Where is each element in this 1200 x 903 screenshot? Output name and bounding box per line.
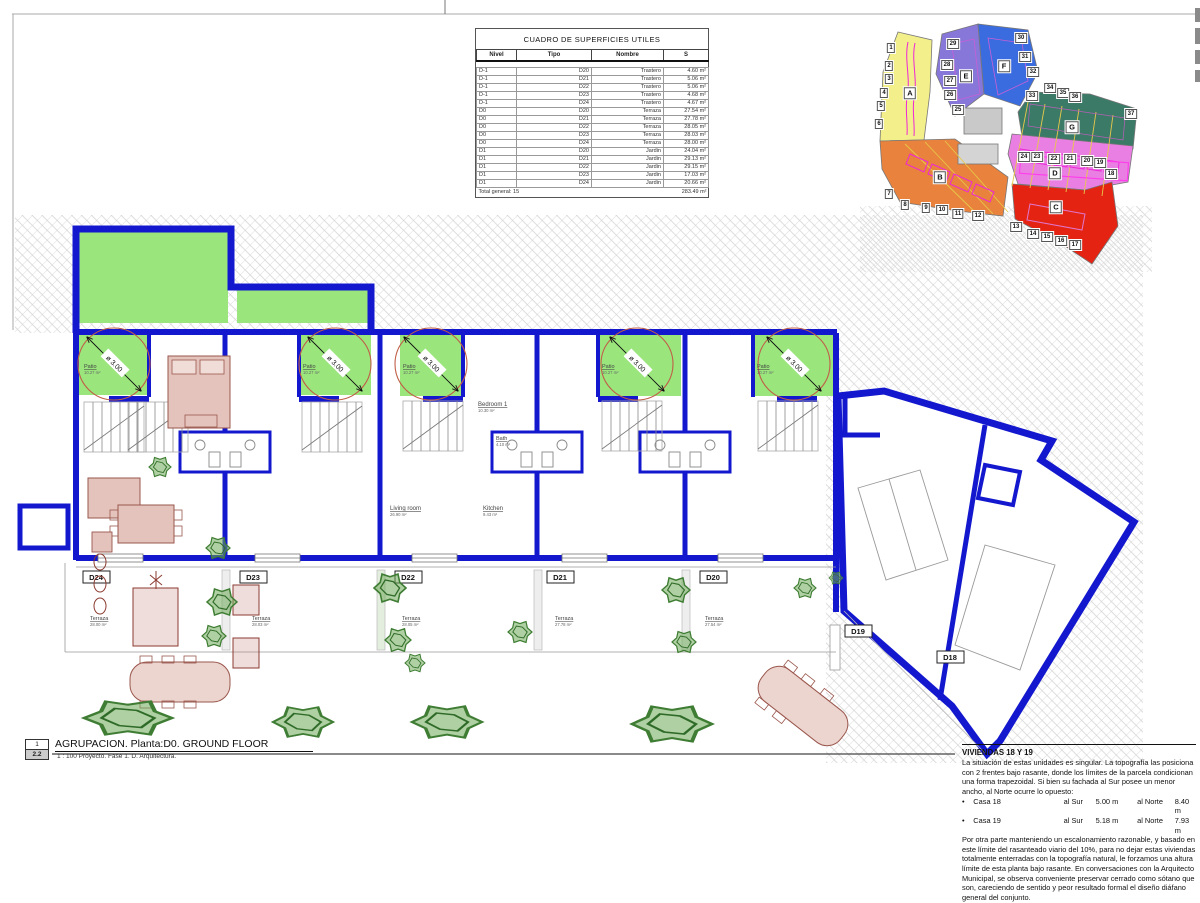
bath-area: 4.10 m² [496, 442, 511, 447]
table-cell: Jardin [592, 172, 664, 180]
table-cell: D23 [517, 132, 592, 140]
table-cell: D24 [517, 100, 592, 108]
table-cell: Jardin [592, 164, 664, 172]
table-cell: D22 [517, 124, 592, 132]
sur-value: 5.00 m [1096, 797, 1137, 816]
patio-area: 10.27 m² [303, 370, 320, 375]
zone-label-f: F [998, 60, 1010, 72]
table-cell: 28.00 m² [664, 140, 709, 148]
table-cell: Terraza [592, 116, 664, 124]
notes-block: VIVIENDAS 18 Y 19 La situación de estas … [962, 744, 1196, 903]
index-top: 1 [26, 740, 48, 750]
table-cell: D-1 [477, 92, 517, 100]
plot-number-36: 36 [1069, 92, 1081, 102]
notes-paragraph-2: Por otra parte manteniendo un escalonami… [962, 835, 1196, 902]
table-cell: D1 [477, 148, 517, 156]
table-cell: D23 [517, 92, 592, 100]
table-row: D-1D20Trastero4.60 m² [477, 68, 709, 76]
unit-tag-d21: D21 [553, 573, 567, 582]
plot-number-31: 31 [1019, 52, 1031, 62]
terraza-labels: Terraza28.00 m² Terraza28.03 m² Terraza2… [90, 616, 724, 627]
plot-number-8: 8 [901, 200, 909, 210]
plot-number-7: 7 [885, 189, 893, 199]
sur-label: al Sur [1064, 797, 1096, 816]
site-key-map: 1234567891011121314151617181920212223242… [860, 14, 1152, 272]
plot-number-28: 28 [941, 60, 953, 70]
table-cell: 29.15 m² [664, 164, 709, 172]
plot-number-29: 29 [947, 39, 959, 49]
plot-number-6: 6 [875, 119, 883, 129]
table-cell: D0 [477, 116, 517, 124]
table-cell: D-1 [477, 84, 517, 92]
table-cell: D-1 [477, 76, 517, 84]
casa-19-row: • Casa 19 al Sur 5.18 m al Norte 7.93 m [962, 816, 1196, 835]
col-header-tipo: Tipo [517, 50, 592, 62]
table-row: D1D20Jardin24.04 m² [477, 148, 709, 156]
table-cell: Trastero [592, 76, 664, 84]
total-value: 283.49 m² [664, 188, 709, 198]
zone-label-c: C [1050, 201, 1062, 213]
table-cell: D23 [517, 172, 592, 180]
notes-title: VIVIENDAS 18 Y 19 [962, 748, 1196, 758]
bedroom-area: 10.30 m² [478, 408, 495, 413]
drawing-sheet: ø 3.00 ø 3.00 ø 3.00 ø 3.00 ø 3.00 [0, 0, 1200, 903]
table-cell: D0 [477, 108, 517, 116]
surface-table-title: CUADRO DE SUPERFICIES UTILES [476, 29, 708, 49]
table-row: D0D24Terraza28.00 m² [477, 140, 709, 148]
table-row: D1D21Jardin29.13 m² [477, 156, 709, 164]
site-key-map-canvas [860, 14, 1152, 272]
drawing-title: AGRUPACION. Planta:D0. GROUND FLOOR [55, 738, 313, 752]
kitchen-area: 9.43 m² [483, 512, 498, 517]
bathrooms [180, 432, 730, 472]
gray-block [958, 144, 998, 164]
table-cell: 27.54 m² [664, 108, 709, 116]
terraza-area: 27.78 m² [555, 622, 572, 627]
col-header-nivel: Nivel [477, 50, 517, 62]
zone-label-e: E [960, 70, 972, 82]
plot-number-22: 22 [1048, 154, 1060, 164]
table-cell: 4.68 m² [664, 92, 709, 100]
casa-name: Casa 19 [973, 816, 1063, 835]
plot-number-16: 16 [1055, 236, 1067, 246]
plot-number-9: 9 [922, 203, 930, 213]
table-cell: D24 [517, 140, 592, 148]
table-cell: Trastero [592, 100, 664, 108]
plot-number-17: 17 [1069, 240, 1081, 250]
terraza-area: 27.54 m² [705, 622, 722, 627]
table-cell: 29.13 m² [664, 156, 709, 164]
table-cell: D20 [517, 68, 592, 76]
table-cell: 20.66 m² [664, 180, 709, 188]
casa-name: Casa 18 [973, 797, 1063, 816]
table-cell: Trastero [592, 68, 664, 76]
zone-label-b: B [934, 171, 946, 183]
plot-number-10: 10 [936, 205, 948, 215]
table-cell: D0 [477, 140, 517, 148]
plot-number-4: 4 [880, 88, 888, 98]
total-label: Total general: 15 [477, 188, 664, 198]
table-cell: Jardin [592, 180, 664, 188]
table-cell: 28.05 m² [664, 124, 709, 132]
plot-number-37: 37 [1125, 109, 1137, 119]
table-cell: Jardin [592, 148, 664, 156]
norte-label: al Norte [1137, 816, 1175, 835]
table-row: D-1D22Trastero5.06 m² [477, 84, 709, 92]
table-cell: Terraza [592, 132, 664, 140]
table-row: D0D20Terraza27.54 m² [477, 108, 709, 116]
unit-tag-d20: D20 [706, 573, 720, 582]
plot-number-14: 14 [1027, 229, 1039, 239]
living-area: 26.90 m² [390, 512, 407, 517]
plot-number-26: 26 [944, 90, 956, 100]
table-cell: D20 [517, 108, 592, 116]
plot-number-24: 24 [1018, 152, 1030, 162]
right-edge-marks [1195, 8, 1200, 82]
table-cell: D1 [477, 164, 517, 172]
plot-number-21: 21 [1064, 154, 1076, 164]
table-cell: D0 [477, 132, 517, 140]
patio-area: 10.27 m² [602, 370, 619, 375]
unit-tag-d18: D18 [943, 653, 957, 662]
plot-number-11: 11 [952, 209, 963, 219]
casa-18-row: • Casa 18 al Sur 5.00 m al Norte 8.40 m [962, 797, 1196, 816]
col-header-s: S [664, 50, 709, 62]
plot-number-13: 13 [1010, 222, 1022, 232]
table-cell: D21 [517, 76, 592, 84]
plot-number-18: 18 [1105, 169, 1117, 179]
sur-label: al Sur [1064, 816, 1096, 835]
terraza-area: 28.03 m² [252, 622, 269, 627]
bullet: • [962, 816, 973, 835]
plot-number-35: 35 [1057, 88, 1069, 98]
table-row: D0D22Terraza28.05 m² [477, 124, 709, 132]
gray-block [964, 108, 1002, 134]
table-cell: D24 [517, 180, 592, 188]
table-cell: D-1 [477, 100, 517, 108]
sur-value: 5.18 m [1096, 816, 1137, 835]
plot-number-27: 27 [944, 76, 956, 86]
table-cell: D0 [477, 124, 517, 132]
table-row: D-1D21Trastero5.06 m² [477, 76, 709, 84]
table-cell: 4.60 m² [664, 68, 709, 76]
plot-number-12: 12 [972, 211, 984, 221]
norte-value: 7.93 m [1175, 816, 1196, 835]
table-row: D0D21Terraza27.78 m² [477, 116, 709, 124]
table-cell: Trastero [592, 84, 664, 92]
notes-paragraph-1: La situación de estas unidades es singul… [962, 758, 1196, 797]
table-cell: Trastero [592, 92, 664, 100]
plot-number-34: 34 [1044, 83, 1056, 93]
table-cell: 28.03 m² [664, 132, 709, 140]
table-row: D-1D23Trastero4.68 m² [477, 92, 709, 100]
table-cell: D1 [477, 180, 517, 188]
plot-number-25: 25 [952, 105, 964, 115]
plot-number-19: 19 [1094, 158, 1106, 168]
table-cell: D22 [517, 164, 592, 172]
table-cell: 27.78 m² [664, 116, 709, 124]
table-row: D1D24Jardin20.66 m² [477, 180, 709, 188]
col-header-nombre: Nombre [592, 50, 664, 62]
patio-area: 10.27 m² [403, 370, 420, 375]
plot-number-32: 32 [1027, 67, 1039, 77]
drawing-index-box: 1 2.2 [25, 739, 49, 760]
table-row: D1D22Jardin29.15 m² [477, 164, 709, 172]
table-cell: 5.06 m² [664, 76, 709, 84]
table-row: D1D23Jardin17.03 m² [477, 172, 709, 180]
table-cell: D1 [477, 156, 517, 164]
index-bottom: 2.2 [26, 750, 48, 759]
plot-number-3: 3 [885, 74, 893, 84]
plot-number-2: 2 [885, 61, 893, 71]
plot-number-1: 1 [887, 43, 895, 53]
plot-number-20: 20 [1081, 156, 1093, 166]
table-cell: D21 [517, 116, 592, 124]
table-cell: Terraza [592, 108, 664, 116]
table-cell: D-1 [477, 68, 517, 76]
surface-table: CUADRO DE SUPERFICIES UTILES Nivel Tipo … [475, 28, 709, 198]
table-cell: D1 [477, 172, 517, 180]
plot-number-23: 23 [1031, 152, 1043, 162]
drawing-scale: 1 : 100 Proyecto. Fase 1. D. Arquitectur… [57, 753, 176, 760]
zone-label-g: G [1066, 121, 1079, 133]
norte-value: 8.40 m [1175, 797, 1196, 816]
table-cell: Jardin [592, 156, 664, 164]
patio-area: 10.27 m² [757, 370, 774, 375]
zone-label-a: A [904, 87, 916, 99]
norte-label: al Norte [1137, 797, 1175, 816]
patio-area: 10.27 m² [84, 370, 101, 375]
table-row: D-1D24Trastero4.67 m² [477, 100, 709, 108]
table-cell: Terraza [592, 140, 664, 148]
table-cell: D21 [517, 156, 592, 164]
table-header-row: Nivel Tipo Nombre S [477, 50, 709, 62]
plot-number-33: 33 [1026, 91, 1038, 101]
terraza-area: 28.00 m² [90, 622, 107, 627]
table-cell: 5.06 m² [664, 84, 709, 92]
table-cell: 4.67 m² [664, 100, 709, 108]
table-cell: D20 [517, 148, 592, 156]
table-total-row: Total general: 15 283.49 m² [477, 188, 709, 198]
unit-tag-d22: D22 [401, 573, 415, 582]
table-cell: 17.03 m² [664, 172, 709, 180]
zone-label-d: D [1049, 167, 1061, 179]
plot-number-15: 15 [1041, 232, 1053, 242]
table-cell: D22 [517, 84, 592, 92]
unit-tag-d23: D23 [246, 573, 260, 582]
bullet: • [962, 797, 973, 816]
unit-tag-d19: D19 [851, 627, 865, 636]
table-row: D0D23Terraza28.03 m² [477, 132, 709, 140]
table-cell: 24.04 m² [664, 148, 709, 156]
plot-number-30: 30 [1015, 33, 1027, 43]
table-cell: Terraza [592, 124, 664, 132]
terraza-area: 28.05 m² [402, 622, 419, 627]
plot-number-5: 5 [877, 101, 885, 111]
